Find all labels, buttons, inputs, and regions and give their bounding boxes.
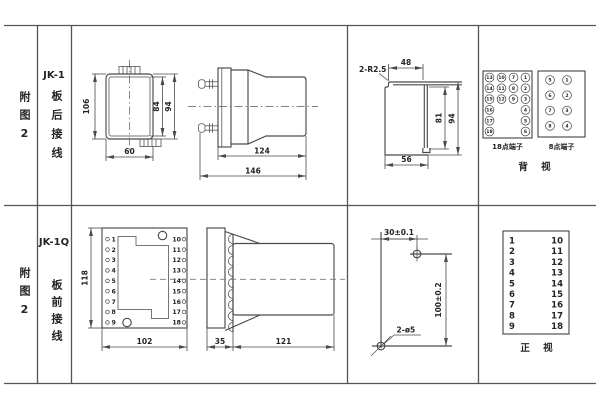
front-terminal: 6 bbox=[112, 288, 116, 295]
front-terminal: 9 bbox=[112, 320, 116, 327]
dim-106: 106 bbox=[82, 99, 91, 115]
terminal-number: 5 bbox=[524, 118, 527, 124]
terminal-18pt-label: 18点端子 bbox=[492, 142, 523, 151]
dim-102: 102 bbox=[137, 337, 153, 346]
mounting-hole bbox=[158, 231, 166, 239]
table-cell: 16 bbox=[551, 301, 563, 311]
terminal-number: 8 bbox=[512, 86, 515, 92]
table-cell: 7 bbox=[509, 301, 515, 311]
front-terminal: 18 bbox=[172, 320, 181, 327]
rear-side-view-drawing: 124 146 bbox=[188, 68, 318, 180]
table-cell: 2 bbox=[509, 247, 515, 257]
terminal-number: 9 bbox=[512, 97, 515, 103]
terminal-number: 6 bbox=[524, 129, 527, 135]
table-grid bbox=[4, 26, 596, 384]
table-cell: 1 bbox=[509, 237, 515, 247]
front-terminal: 2 bbox=[112, 247, 116, 254]
dim-48: 48 bbox=[401, 58, 411, 67]
terminal-number: 2 bbox=[524, 86, 527, 92]
front-terminal: 16 bbox=[172, 299, 181, 306]
holes-label: 2-ø5 bbox=[397, 326, 416, 335]
front-terminal: 1 bbox=[112, 236, 116, 243]
front-terminal: 12 bbox=[172, 257, 181, 264]
table-cell: 5 bbox=[509, 279, 515, 289]
terminal-number: 6 bbox=[548, 93, 551, 99]
terminal-number: 2 bbox=[565, 93, 568, 99]
terminal-number: 14 bbox=[486, 86, 492, 92]
table-cell: 17 bbox=[551, 311, 563, 321]
rear-front-view-drawing: 106 84 94 60 bbox=[82, 60, 178, 161]
front-terminal: 4 bbox=[112, 268, 117, 275]
terminal-number: 8 bbox=[548, 124, 551, 130]
dim-56: 56 bbox=[401, 155, 411, 164]
terminal-number: 7 bbox=[548, 108, 551, 114]
terminal-number: 1 bbox=[565, 78, 568, 84]
rear-panel-cutout-drawing: 2-R2.5 48 81 94 56 bbox=[359, 58, 462, 169]
terminal-number: 13 bbox=[486, 75, 492, 81]
table-cell: 6 bbox=[509, 290, 515, 300]
rear-bottom-terminal-block bbox=[140, 139, 161, 147]
terminal-8pt-diagram: 5 1 6 2 7 3 8 4 8点端子 背 视 bbox=[518, 71, 585, 173]
dim-94: 94 bbox=[164, 101, 173, 111]
terminal-number: 4 bbox=[524, 108, 527, 114]
table-cell: 10 bbox=[551, 237, 563, 247]
front-terminal-table: 1 2 3 4 5 6 7 8 9 10 11 12 13 14 15 16 1… bbox=[503, 231, 569, 354]
terminal-number: 12 bbox=[498, 97, 504, 103]
mounting-hole bbox=[123, 318, 131, 326]
front-terminal: 5 bbox=[112, 278, 116, 285]
table-cell: 14 bbox=[551, 279, 563, 289]
dim-100: 100±0.2 bbox=[434, 282, 443, 317]
dim-81: 81 bbox=[435, 113, 444, 123]
table-cell: 18 bbox=[551, 322, 563, 332]
table-cell: 15 bbox=[551, 290, 563, 300]
terminal-number: 4 bbox=[565, 124, 568, 130]
table-cell: 8 bbox=[509, 311, 515, 321]
terminal-number: 17 bbox=[486, 118, 492, 124]
front-terminal: 8 bbox=[112, 309, 116, 316]
terminal-number: 5 bbox=[548, 78, 551, 84]
dim-94-cutout: 94 bbox=[448, 113, 457, 123]
dim-84: 84 bbox=[152, 101, 161, 111]
table-cell: 11 bbox=[551, 247, 563, 257]
corner-radius-label: 2-R2.5 bbox=[359, 65, 386, 74]
terminal-18pt-diagram: 13 10 7 1 14 11 8 2 15 12 9 3 16 17 18 4… bbox=[483, 71, 532, 151]
front-drilling-template: 30±0.1 100±0.2 2-ø5 bbox=[371, 228, 452, 356]
dim-118: 118 bbox=[81, 270, 90, 286]
dim-146: 146 bbox=[245, 167, 261, 176]
terminal-number: 18 bbox=[486, 129, 492, 135]
front-view-label: 正 视 bbox=[520, 342, 557, 354]
terminal-number: 1 bbox=[524, 75, 527, 81]
terminal-8pt-label: 8点端子 bbox=[549, 142, 575, 151]
terminal-number: 3 bbox=[565, 108, 568, 114]
table-cell: 4 bbox=[509, 269, 515, 279]
terminal-screw-bottom bbox=[199, 123, 219, 133]
front-terminal: 13 bbox=[172, 268, 181, 275]
diagram-canvas: 106 84 94 60 bbox=[0, 0, 600, 400]
terminal-number: 10 bbox=[498, 75, 504, 81]
front-terminal: 15 bbox=[172, 288, 181, 295]
table-cell: 12 bbox=[551, 258, 563, 268]
dim-60: 60 bbox=[124, 147, 134, 156]
front-terminal: 17 bbox=[172, 309, 181, 316]
dim-121: 121 bbox=[276, 337, 292, 346]
front-front-view-drawing: 1 2 3 4 5 6 7 8 9 10 11 12 13 14 15 16 1… bbox=[81, 228, 188, 351]
dim-30: 30±0.1 bbox=[384, 228, 414, 237]
dim-124: 124 bbox=[254, 147, 270, 156]
drawing-sheet: 附图2 JK-1 板后接线 附图2 JK-1Q 板前接线 bbox=[0, 0, 600, 400]
rear-view-label: 背 视 bbox=[518, 161, 555, 173]
front-terminal: 3 bbox=[112, 257, 116, 264]
front-terminal: 11 bbox=[172, 247, 181, 254]
terminal-screw-top bbox=[199, 79, 219, 89]
table-cell: 3 bbox=[509, 258, 515, 268]
terminal-number: 7 bbox=[512, 75, 515, 81]
dim-35: 35 bbox=[215, 337, 225, 346]
front-terminal: 7 bbox=[112, 299, 116, 306]
table-cell: 9 bbox=[509, 322, 515, 332]
terminal-number: 11 bbox=[498, 86, 504, 92]
terminal-number: 15 bbox=[486, 97, 492, 103]
terminal-number: 16 bbox=[486, 108, 492, 114]
front-terminal: 10 bbox=[172, 236, 181, 243]
table-cell: 13 bbox=[551, 269, 563, 279]
terminal-number: 3 bbox=[524, 97, 527, 103]
